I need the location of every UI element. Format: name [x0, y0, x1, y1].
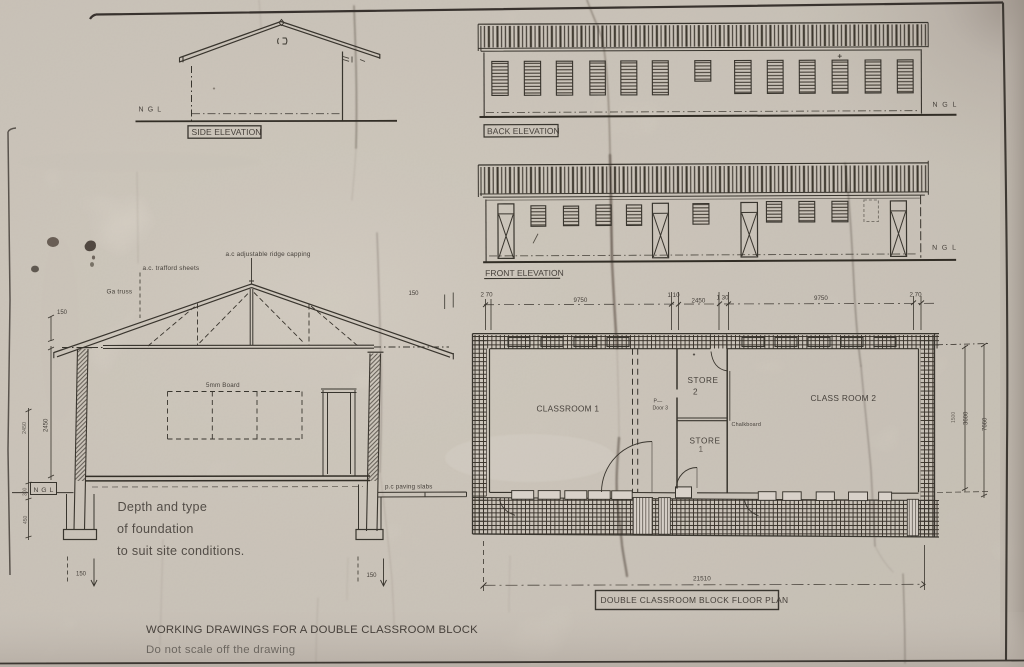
svg-text:of foundation: of foundation: [117, 522, 194, 536]
svg-text:Depth and type: Depth and type: [118, 500, 208, 514]
svg-text:150: 150: [76, 572, 87, 578]
svg-text:to suit site conditions.: to suit site conditions.: [117, 544, 245, 558]
svg-text:1500: 1500: [951, 412, 957, 423]
svg-text:CLASSROOM 1: CLASSROOM 1: [537, 404, 600, 414]
svg-text:a.c. trafford sheets: a.c. trafford sheets: [143, 265, 200, 272]
svg-text:9750: 9750: [574, 297, 588, 304]
svg-text:2 70: 2 70: [481, 292, 494, 299]
svg-text:DOUBLE CLASSROOM BLOCK FLOOR P: DOUBLE CLASSROOM BLOCK FLOOR PLAN: [601, 595, 789, 605]
svg-text:N G L: N G L: [932, 245, 957, 252]
svg-text:2450: 2450: [692, 298, 706, 305]
svg-text:Ga truss: Ga truss: [107, 289, 133, 296]
svg-text:SIDE ELEVATION: SIDE ELEVATION: [192, 127, 262, 137]
svg-text:N G L: N G L: [932, 102, 957, 109]
svg-text:STORE: STORE: [688, 376, 719, 385]
svg-text:Door 3: Door 3: [653, 406, 669, 412]
svg-text:2 70: 2 70: [910, 292, 923, 299]
svg-text:BACK ELEVATION: BACK ELEVATION: [487, 126, 560, 136]
svg-text:150: 150: [57, 310, 68, 316]
svg-text:1 30: 1 30: [717, 295, 730, 302]
svg-text:9750: 9750: [814, 295, 828, 302]
svg-text:P—: P—: [654, 399, 663, 405]
svg-text:150: 150: [409, 291, 420, 297]
svg-text:21510: 21510: [693, 576, 711, 583]
svg-text:150: 150: [367, 573, 378, 579]
svg-text:Do not scale off the drawing: Do not scale off the drawing: [146, 644, 295, 656]
svg-text:CLASS ROOM 2: CLASS ROOM 2: [811, 393, 877, 403]
svg-text:7660: 7660: [983, 417, 989, 431]
svg-text:WORKING DRAWINGS FOR A DOUBLE: WORKING DRAWINGS FOR A DOUBLE CLASSROOM …: [146, 624, 478, 636]
svg-text:Chalkboard: Chalkboard: [732, 422, 762, 428]
svg-text:5mm Board: 5mm Board: [206, 382, 240, 389]
svg-text:a.c adjustable ridge capping: a.c adjustable ridge capping: [226, 251, 311, 258]
svg-text:FRONT ELEVATION: FRONT ELEVATION: [485, 268, 564, 278]
svg-text:2: 2: [693, 388, 698, 397]
svg-text:300: 300: [23, 487, 29, 496]
svg-text:1 10: 1 10: [668, 292, 681, 299]
svg-text:STORE: STORE: [690, 437, 721, 446]
svg-text:p.c paving slabs: p.c paving slabs: [385, 483, 433, 490]
svg-text:N G L: N G L: [34, 487, 54, 494]
svg-text:3600: 3600: [964, 411, 970, 425]
svg-text:450: 450: [23, 515, 29, 524]
svg-text:N G L: N G L: [139, 107, 163, 114]
svg-text:1: 1: [699, 445, 704, 454]
svg-text:2450: 2450: [22, 422, 28, 434]
svg-text:2450: 2450: [44, 418, 50, 432]
